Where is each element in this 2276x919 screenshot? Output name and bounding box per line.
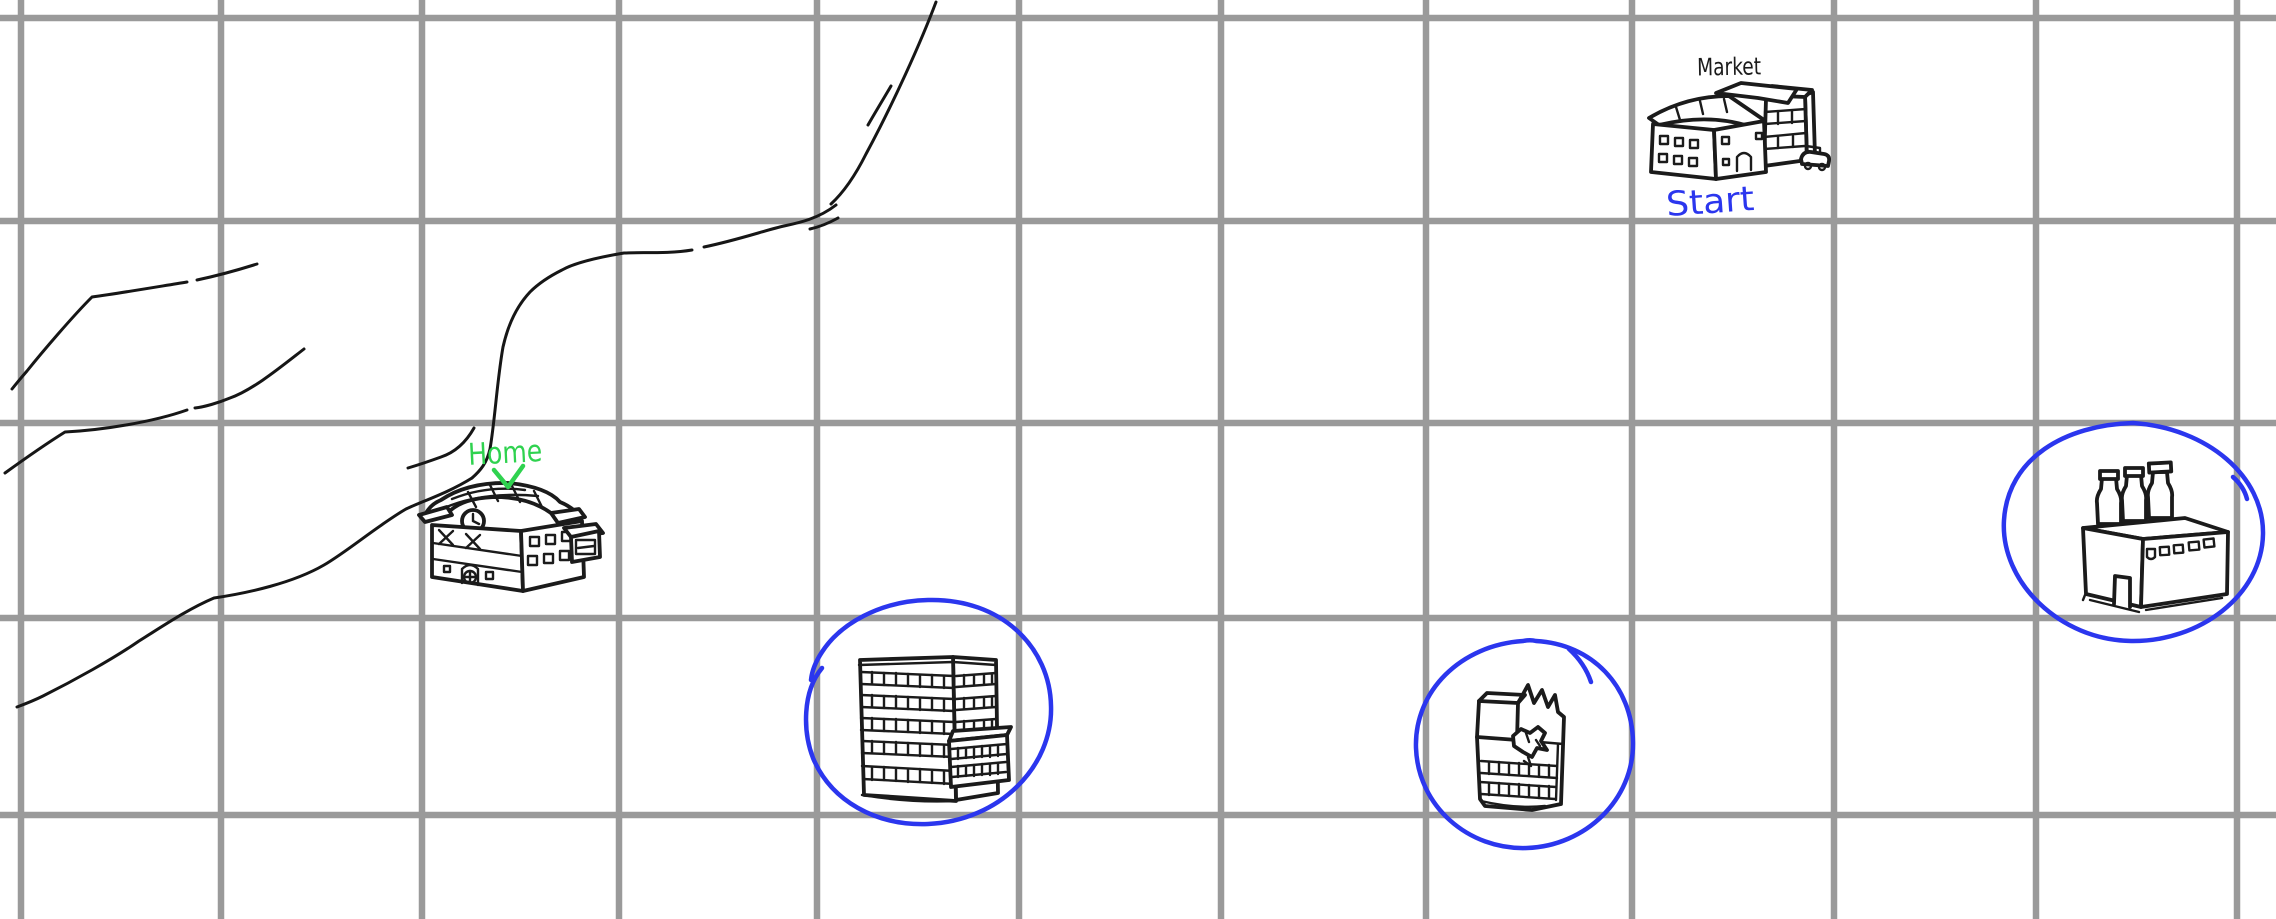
ruined-building-icon — [1477, 685, 1564, 810]
home-building-icon — [419, 483, 603, 591]
map-canvas[interactable]: Market Start Home — [0, 0, 2276, 919]
market-building-icon — [1649, 83, 1829, 179]
start-label: Start — [1665, 179, 1756, 225]
market-label: Market — [1697, 52, 1761, 81]
grid — [0, 0, 2276, 919]
bottle-factory-icon — [2083, 462, 2228, 612]
river-drawing — [5, 2, 936, 707]
home-label: Home — [467, 434, 543, 473]
office-tower-icon — [859, 657, 1011, 801]
